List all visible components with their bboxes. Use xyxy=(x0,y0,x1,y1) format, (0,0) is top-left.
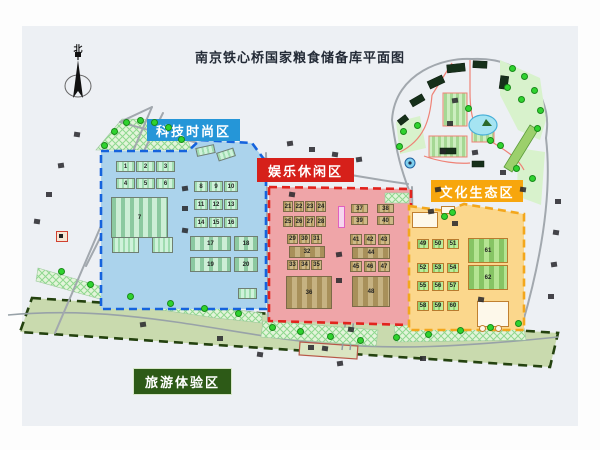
illegible-label-mark xyxy=(478,297,485,303)
building-10: 10 xyxy=(224,181,238,192)
illegible-label-mark xyxy=(548,294,554,299)
tree-icon xyxy=(151,119,158,126)
building-43: 43 xyxy=(378,234,390,245)
building-29: 29 xyxy=(287,234,298,244)
building-31: 31 xyxy=(311,234,322,244)
site-plan: 南京铁心桥国家粮食储备库平面图 北 科技时尚区 娱乐休闲区 文化生态区 旅游体验… xyxy=(0,0,600,450)
illegible-label-mark xyxy=(452,98,459,104)
illegible-label-mark xyxy=(182,206,188,211)
plan-title: 南京铁心桥国家粮食储备库平面图 xyxy=(150,47,450,66)
illegible-label-mark xyxy=(140,322,147,328)
illegible-label-mark xyxy=(309,147,315,152)
illegible-label-mark xyxy=(182,186,189,192)
culture-outline-building xyxy=(477,301,509,327)
tree-icon xyxy=(178,136,185,143)
building-16: 16 xyxy=(224,217,238,228)
tree-icon xyxy=(123,119,130,126)
tree-icon xyxy=(457,327,464,334)
building-3: 3 xyxy=(156,161,175,172)
building-57: 57 xyxy=(447,281,459,291)
illegible-label-mark xyxy=(440,149,447,155)
building-56: 56 xyxy=(432,281,444,291)
building-5: 5 xyxy=(136,178,155,189)
building-11: 11 xyxy=(194,199,208,210)
tree-icon xyxy=(465,105,472,112)
building-53: 53 xyxy=(432,263,444,273)
illegible-label-mark xyxy=(308,345,314,350)
leisure-pink-structure xyxy=(338,206,345,228)
zone-label-tech: 科技时尚区 xyxy=(147,119,240,141)
culture-tank xyxy=(495,325,502,332)
tree-icon xyxy=(509,65,516,72)
compass-north-label: 北 xyxy=(66,42,90,55)
building-47: 47 xyxy=(378,261,390,272)
building-22: 22 xyxy=(294,201,304,212)
building-7: 7 xyxy=(111,197,168,238)
building-48: 48 xyxy=(352,276,390,307)
building-25: 25 xyxy=(283,216,293,227)
tree-icon xyxy=(504,84,511,91)
illegible-label-mark xyxy=(520,187,527,193)
illegible-label-mark xyxy=(289,192,296,198)
illegible-label-mark xyxy=(472,150,479,156)
illegible-label-mark xyxy=(500,170,506,175)
illegible-label-mark xyxy=(182,228,189,234)
illegible-label-mark xyxy=(447,121,453,126)
tree-icon xyxy=(167,300,174,307)
building-35: 35 xyxy=(311,260,322,270)
tree-icon xyxy=(531,87,538,94)
illegible-label-mark xyxy=(257,352,264,358)
tree-icon xyxy=(529,175,536,182)
building-51: 51 xyxy=(447,239,459,249)
building-44: 44 xyxy=(352,247,390,259)
tree-icon xyxy=(534,125,541,132)
building-30: 30 xyxy=(299,234,310,244)
tree-icon xyxy=(414,122,421,129)
tree-icon xyxy=(513,165,520,172)
building-49: 49 xyxy=(417,239,429,249)
building-26: 26 xyxy=(294,216,304,227)
tree-icon xyxy=(400,128,407,135)
zone-label-tourism: 旅游体验区 xyxy=(133,368,232,395)
building-1: 1 xyxy=(116,161,135,172)
building-54: 54 xyxy=(447,263,459,273)
building-45: 45 xyxy=(350,261,362,272)
illegible-label-mark xyxy=(46,192,52,197)
tree-icon xyxy=(396,143,403,150)
building-36: 36 xyxy=(286,276,332,309)
illegible-label-mark xyxy=(336,252,343,258)
illegible-label-mark xyxy=(435,187,442,193)
illegible-label-mark xyxy=(58,163,65,169)
compass-icon xyxy=(65,52,91,98)
building-2: 2 xyxy=(136,161,155,172)
building-61: 61 xyxy=(468,238,508,263)
tree-icon xyxy=(297,328,304,335)
culture-tank xyxy=(479,325,486,332)
illegible-label-mark xyxy=(555,199,561,204)
illegible-label-mark xyxy=(322,346,329,352)
illegible-label-mark xyxy=(428,209,435,215)
building-28: 28 xyxy=(316,216,326,227)
building-34: 34 xyxy=(299,260,310,270)
building-41: 41 xyxy=(350,234,362,245)
building-14: 14 xyxy=(194,217,208,228)
building-59: 59 xyxy=(432,301,444,311)
illegible-label-mark xyxy=(74,132,81,138)
roadside-marker xyxy=(56,231,68,242)
building-55: 55 xyxy=(417,281,429,291)
illegible-label-mark xyxy=(337,361,344,367)
building-62: 62 xyxy=(468,265,508,290)
illegible-label-mark xyxy=(553,230,560,236)
illegible-label-mark xyxy=(332,152,339,158)
building-58: 58 xyxy=(417,301,429,311)
zone-label-leisure: 娱乐休闲区 xyxy=(257,158,354,182)
tree-icon xyxy=(515,320,522,327)
building-40: 40 xyxy=(377,216,394,225)
building-13: 13 xyxy=(224,199,238,210)
illegible-label-mark xyxy=(348,327,355,333)
tree-icon xyxy=(393,334,400,341)
building-4: 4 xyxy=(116,178,135,189)
building-23: 23 xyxy=(305,201,315,212)
building-unlabeled xyxy=(238,288,257,299)
tree-icon xyxy=(521,73,528,80)
tree-icon xyxy=(357,337,364,344)
building-19: 19 xyxy=(190,257,231,272)
illegible-label-mark xyxy=(356,157,363,163)
building-15: 15 xyxy=(209,217,223,228)
zone-label-culture: 文化生态区 xyxy=(431,180,523,202)
building-46: 46 xyxy=(364,261,376,272)
building-50: 50 xyxy=(432,239,444,249)
building-24: 24 xyxy=(316,201,326,212)
building-6: 6 xyxy=(156,178,175,189)
tree-icon xyxy=(487,137,494,144)
building-8: 8 xyxy=(194,181,208,192)
building-38: 38 xyxy=(377,204,394,213)
building-unlabeled xyxy=(152,237,173,253)
illegible-label-mark xyxy=(420,356,426,361)
building-37: 37 xyxy=(351,204,368,213)
tree-icon xyxy=(101,142,108,149)
building-60: 60 xyxy=(447,301,459,311)
tree-icon xyxy=(441,213,448,220)
tree-icon xyxy=(269,324,276,331)
leisure-hatch-corner xyxy=(385,193,409,203)
building-9: 9 xyxy=(209,181,223,192)
tree-icon xyxy=(137,117,144,124)
tree-icon xyxy=(518,96,525,103)
building-32: 32 xyxy=(289,246,325,258)
illegible-label-mark xyxy=(336,278,342,283)
building-17: 17 xyxy=(190,236,231,251)
building-18: 18 xyxy=(234,236,258,251)
illegible-label-mark xyxy=(34,219,41,225)
building-27: 27 xyxy=(305,216,315,227)
tree-icon xyxy=(87,281,94,288)
tree-icon xyxy=(165,124,172,131)
tree-icon xyxy=(327,333,334,340)
tree-icon xyxy=(58,268,65,275)
illegible-label-mark xyxy=(217,336,223,341)
building-20: 20 xyxy=(234,257,258,272)
tree-icon xyxy=(487,324,494,331)
tree-icon xyxy=(201,305,208,312)
illegible-label-mark xyxy=(287,141,294,147)
tree-icon xyxy=(425,331,432,338)
building-unlabeled xyxy=(112,237,139,253)
tree-icon xyxy=(497,142,504,149)
culture-outline-building xyxy=(412,212,438,228)
illegible-label-mark xyxy=(551,262,558,268)
tree-icon xyxy=(111,128,118,135)
building-39: 39 xyxy=(351,216,368,225)
building-52: 52 xyxy=(417,263,429,273)
building-33: 33 xyxy=(287,260,298,270)
tree-icon xyxy=(235,310,242,317)
illegible-label-mark xyxy=(452,221,458,226)
tree-icon xyxy=(537,107,544,114)
building-42: 42 xyxy=(364,234,376,245)
tree-icon xyxy=(449,209,456,216)
building-21: 21 xyxy=(283,201,293,212)
building-12: 12 xyxy=(209,199,223,210)
tree-icon xyxy=(127,293,134,300)
